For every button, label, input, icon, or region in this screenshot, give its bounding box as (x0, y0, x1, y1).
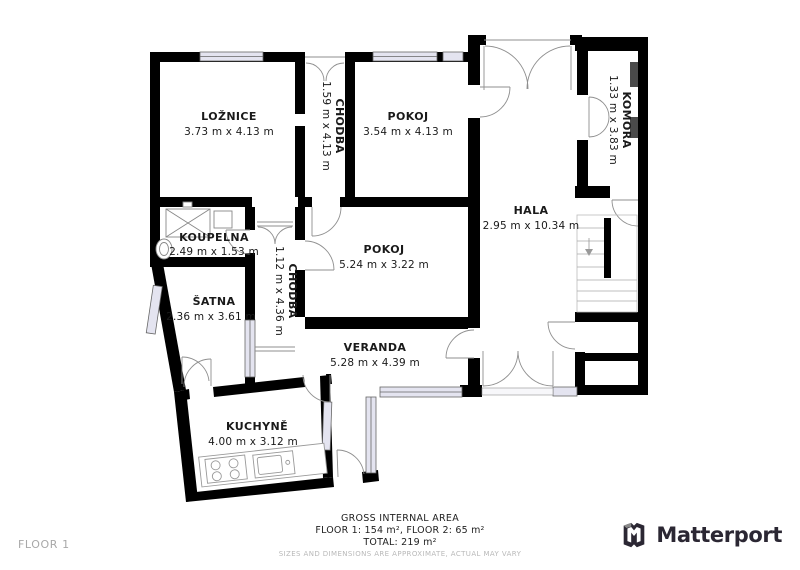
floor-selector-label: FLOOR 1 (18, 538, 70, 551)
room-dims-pokoj-mid: 5.24 m x 3.22 m (339, 259, 429, 271)
room-label-chodba-mid: CHODBA (286, 263, 299, 318)
room-label-chodba-top: CHODBA (333, 98, 346, 153)
room-dims-pokoj-top: 3.54 m x 4.13 m (363, 126, 453, 138)
room-label-loznice: LOŽNICE (201, 110, 257, 123)
room-label-pokoj-top: POKOJ (388, 110, 429, 123)
stairs-direction-arrow (585, 249, 593, 256)
stove (205, 455, 247, 483)
floor-plan: LOŽNICE 3.73 m x 4.13 m CHODBA 1.59 m x … (0, 0, 800, 566)
room-label-kuchyne: KUCHYNĚ (226, 420, 288, 433)
room-dims-chodba-top: 1.59 m x 4.13 m (320, 81, 332, 171)
room-dims-koupelna: 2.49 m x 1.53 m (169, 246, 259, 258)
matterport-m-cube-icon (619, 520, 649, 550)
matterport-wordmark: Matterport (656, 523, 782, 547)
room-dims-loznice: 3.73 m x 4.13 m (184, 126, 274, 138)
toilet (214, 211, 232, 228)
room-dims-hala: 2.95 m x 10.34 m (483, 220, 580, 232)
faucet (183, 202, 192, 207)
room-label-koupelna: KOUPELNA (179, 231, 249, 244)
room-dims-kuchyne: 4.00 m x 3.12 m (208, 436, 298, 448)
room-dims-veranda: 5.28 m x 4.39 m (330, 357, 420, 369)
disclaimer-text: SIZES AND DIMENSIONS ARE APPROXIMATE, AC… (0, 550, 800, 558)
floorplan-page: LOŽNICE 3.73 m x 4.13 m CHODBA 1.59 m x … (0, 0, 800, 566)
room-label-veranda: VERANDA (344, 341, 407, 354)
room-label-hala: HALA (514, 204, 549, 217)
room-label-satna: ŠATNA (193, 295, 236, 308)
room-label-pokoj-mid: POKOJ (364, 243, 405, 256)
room-label-komora: KOMORA (620, 91, 633, 148)
room-dims-satna: 2.36 m x 3.61 m (166, 311, 256, 323)
room-dims-chodba-mid: 1.12 m x 4.36 m (273, 246, 285, 336)
room-dims-komora: 1.33 m x 3.83 m (607, 75, 619, 165)
matterport-brand: Matterport (619, 520, 782, 550)
